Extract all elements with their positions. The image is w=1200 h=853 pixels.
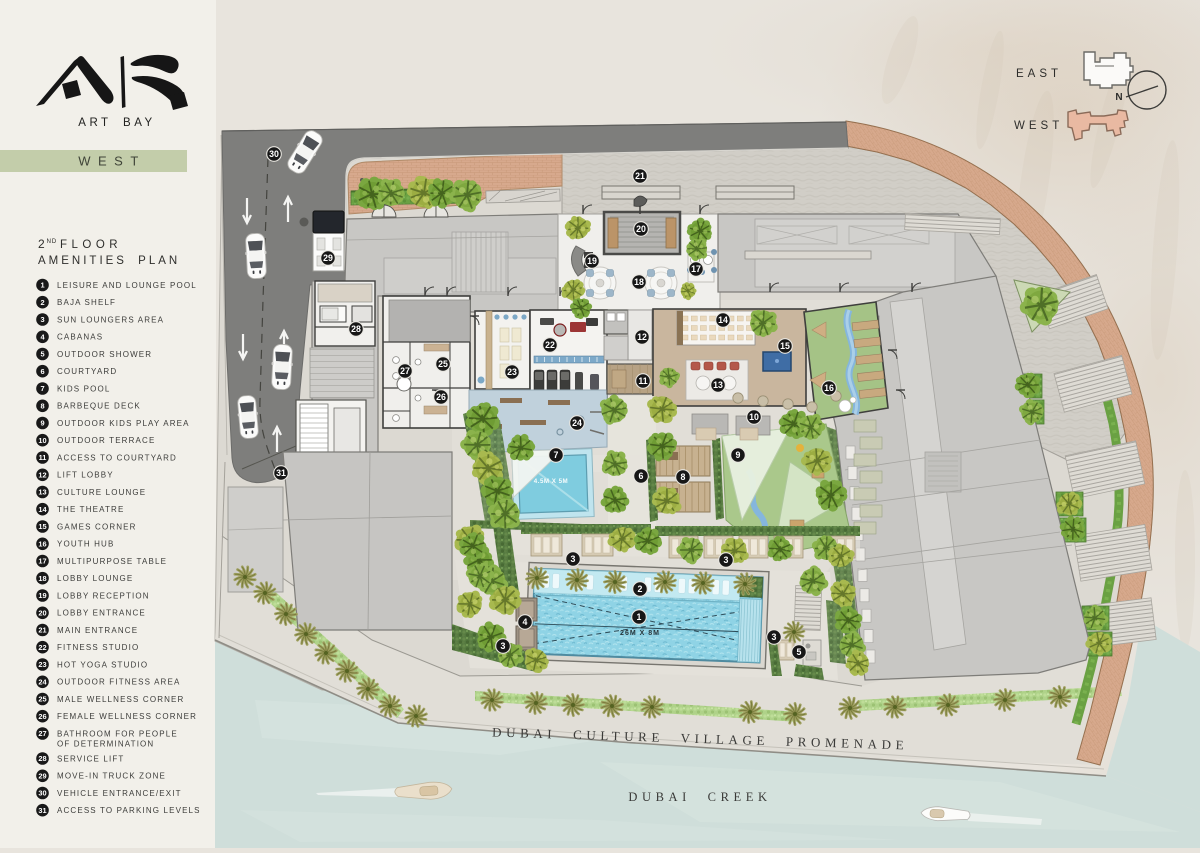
svg-text:22: 22 xyxy=(38,643,46,652)
svg-text:EAST: EAST xyxy=(1016,68,1062,80)
svg-text:9: 9 xyxy=(40,419,44,428)
svg-text:ART BAY: ART BAY xyxy=(78,117,155,129)
svg-text:22: 22 xyxy=(545,340,555,350)
svg-text:27: 27 xyxy=(38,729,46,738)
svg-text:COURTYARD: COURTYARD xyxy=(57,367,117,376)
svg-text:13: 13 xyxy=(38,488,46,497)
svg-text:FITNESS STUDIO: FITNESS STUDIO xyxy=(57,643,139,652)
svg-text:14: 14 xyxy=(38,505,47,514)
svg-text:24: 24 xyxy=(38,677,47,686)
svg-text:26: 26 xyxy=(38,712,46,721)
svg-text:BATHROOM FOR PEOPLE: BATHROOM FOR PEOPLE xyxy=(57,729,178,738)
svg-text:OUTDOOR TERRACE: OUTDOOR TERRACE xyxy=(57,436,155,445)
svg-text:BARBEQUE DECK: BARBEQUE DECK xyxy=(57,402,141,411)
svg-text:VEHICLE ENTRANCE/EXIT: VEHICLE ENTRANCE/EXIT xyxy=(57,789,182,798)
svg-text:16: 16 xyxy=(38,539,46,548)
svg-text:ACCESS TO PARKING LEVELS: ACCESS TO PARKING LEVELS xyxy=(57,806,201,815)
svg-text:26M X 8M: 26M X 8M xyxy=(620,630,660,637)
svg-text:MALE WELLNESS CORNER: MALE WELLNESS CORNER xyxy=(57,695,184,704)
svg-text:HOT YOGA STUDIO: HOT YOGA STUDIO xyxy=(57,660,148,669)
svg-text:OUTDOOR FITNESS AREA: OUTDOOR FITNESS AREA xyxy=(57,678,180,687)
svg-text:20: 20 xyxy=(38,608,46,617)
svg-text:9: 9 xyxy=(736,450,741,460)
svg-text:ND: ND xyxy=(47,238,58,245)
svg-text:CABANAS: CABANAS xyxy=(57,333,103,342)
svg-text:17: 17 xyxy=(38,557,46,566)
svg-text:BAJA SHELF: BAJA SHELF xyxy=(57,298,116,307)
svg-text:17: 17 xyxy=(691,264,701,274)
svg-text:WEST: WEST xyxy=(78,154,146,169)
svg-text:18: 18 xyxy=(38,574,46,583)
svg-text:OUTDOOR SHOWER: OUTDOOR SHOWER xyxy=(57,350,152,359)
svg-text:12: 12 xyxy=(38,470,46,479)
svg-text:1: 1 xyxy=(637,612,642,622)
svg-text:KIDS POOL: KIDS POOL xyxy=(57,384,110,393)
svg-text:23: 23 xyxy=(38,660,46,669)
svg-text:21: 21 xyxy=(38,626,46,635)
svg-text:5: 5 xyxy=(797,647,802,657)
svg-text:31: 31 xyxy=(38,806,46,815)
svg-text:MAIN ENTRANCE: MAIN ENTRANCE xyxy=(57,626,138,635)
svg-text:LOBBY LOUNGE: LOBBY LOUNGE xyxy=(57,574,133,583)
svg-text:2: 2 xyxy=(38,237,46,251)
svg-text:FLOOR: FLOOR xyxy=(60,239,122,251)
svg-text:3: 3 xyxy=(724,555,729,565)
svg-text:29: 29 xyxy=(38,771,46,780)
svg-text:OF DETERMINATION: OF DETERMINATION xyxy=(57,739,154,748)
svg-text:1: 1 xyxy=(40,281,44,290)
svg-text:21: 21 xyxy=(635,171,645,181)
svg-text:28: 28 xyxy=(351,324,361,334)
svg-text:7: 7 xyxy=(40,384,44,393)
svg-text:31: 31 xyxy=(276,468,286,478)
svg-text:10: 10 xyxy=(38,436,46,445)
svg-text:6: 6 xyxy=(639,471,644,481)
svg-text:24: 24 xyxy=(572,418,582,428)
svg-text:ACCESS TO COURTYARD: ACCESS TO COURTYARD xyxy=(57,453,177,462)
svg-text:27: 27 xyxy=(400,366,410,376)
svg-text:7: 7 xyxy=(554,450,559,460)
svg-text:29: 29 xyxy=(323,253,333,263)
svg-text:SUN LOUNGERS AREA: SUN LOUNGERS AREA xyxy=(57,315,164,324)
svg-text:3: 3 xyxy=(772,632,777,642)
svg-text:WEST: WEST xyxy=(1014,120,1063,132)
svg-text:25: 25 xyxy=(438,359,448,369)
svg-text:19: 19 xyxy=(38,591,46,600)
svg-text:30: 30 xyxy=(38,789,46,798)
svg-text:SERVICE LIFT: SERVICE LIFT xyxy=(57,754,124,763)
svg-text:26: 26 xyxy=(436,392,446,402)
svg-text:19: 19 xyxy=(587,256,597,266)
svg-text:28: 28 xyxy=(38,754,46,763)
svg-text:MOVE-IN TRUCK ZONE: MOVE-IN TRUCK ZONE xyxy=(57,772,166,781)
svg-text:LIFT LOBBY: LIFT LOBBY xyxy=(57,471,114,480)
svg-text:16: 16 xyxy=(824,383,834,393)
svg-text:10: 10 xyxy=(749,412,759,422)
svg-text:14: 14 xyxy=(718,315,728,325)
svg-text:3: 3 xyxy=(40,315,44,324)
svg-text:YOUTH HUB: YOUTH HUB xyxy=(57,540,114,549)
svg-text:4.5M X 5M: 4.5M X 5M xyxy=(534,478,568,485)
svg-text:12: 12 xyxy=(637,332,647,342)
svg-text:N: N xyxy=(1115,92,1122,103)
svg-text:8: 8 xyxy=(40,401,44,410)
svg-text:LOBBY RECEPTION: LOBBY RECEPTION xyxy=(57,591,150,600)
svg-text:FEMALE WELLNESS CORNER: FEMALE WELLNESS CORNER xyxy=(57,712,197,721)
svg-text:18: 18 xyxy=(634,277,644,287)
svg-text:11: 11 xyxy=(39,453,47,462)
svg-text:LEISURE AND LOUNGE POOL: LEISURE AND LOUNGE POOL xyxy=(57,281,197,290)
svg-text:15: 15 xyxy=(38,522,46,531)
svg-text:THE THEATRE: THE THEATRE xyxy=(57,505,124,514)
svg-text:23: 23 xyxy=(507,367,517,377)
svg-text:6: 6 xyxy=(40,367,44,376)
svg-text:8: 8 xyxy=(681,472,686,482)
svg-text:3: 3 xyxy=(571,554,576,564)
svg-text:GAMES CORNER: GAMES CORNER xyxy=(57,522,137,531)
svg-text:30: 30 xyxy=(269,149,279,159)
svg-text:4: 4 xyxy=(523,617,528,627)
svg-text:3: 3 xyxy=(501,641,506,651)
svg-text:DUBAI CREEK: DUBAI CREEK xyxy=(628,790,771,804)
svg-text:OUTDOOR KIDS PLAY AREA: OUTDOOR KIDS PLAY AREA xyxy=(57,419,190,428)
svg-text:AMENITIES PLAN: AMENITIES PLAN xyxy=(38,255,180,267)
svg-text:15: 15 xyxy=(780,341,790,351)
svg-text:2: 2 xyxy=(40,298,44,307)
svg-text:CULTURE LOUNGE: CULTURE LOUNGE xyxy=(57,488,146,497)
svg-text:13: 13 xyxy=(713,380,723,390)
svg-text:20: 20 xyxy=(636,224,646,234)
svg-text:LOBBY ENTRANCE: LOBBY ENTRANCE xyxy=(57,609,146,618)
svg-text:25: 25 xyxy=(38,695,46,704)
svg-text:2: 2 xyxy=(638,584,643,594)
svg-text:MULTIPURPOSE TABLE: MULTIPURPOSE TABLE xyxy=(57,557,167,566)
svg-text:11: 11 xyxy=(638,376,647,386)
svg-text:5: 5 xyxy=(40,350,44,359)
